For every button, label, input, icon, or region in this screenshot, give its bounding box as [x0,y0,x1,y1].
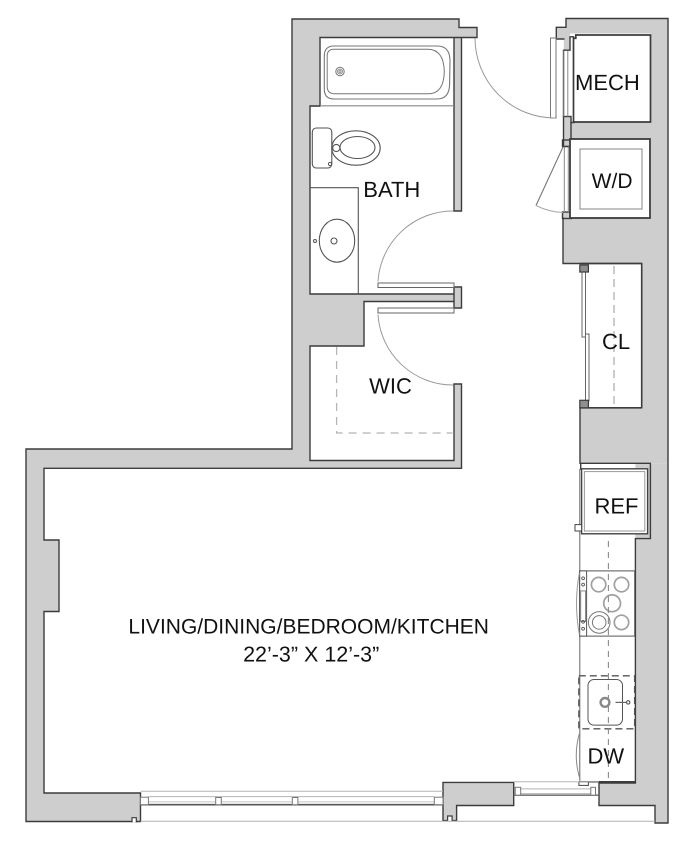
svg-text:W/D: W/D [592,170,633,193]
svg-text:REF: REF [595,494,639,519]
svg-text:22’-3” X 12’-3”: 22’-3” X 12’-3” [243,643,379,667]
svg-text:WIC: WIC [369,374,412,399]
svg-text:LIVING/DINING/BEDROOM/KITCHEN: LIVING/DINING/BEDROOM/KITCHEN [128,616,489,639]
svg-text:CL: CL [602,329,630,354]
svg-text:DW: DW [587,744,624,769]
svg-text:MECH: MECH [575,70,640,95]
svg-text:BATH: BATH [363,177,420,202]
